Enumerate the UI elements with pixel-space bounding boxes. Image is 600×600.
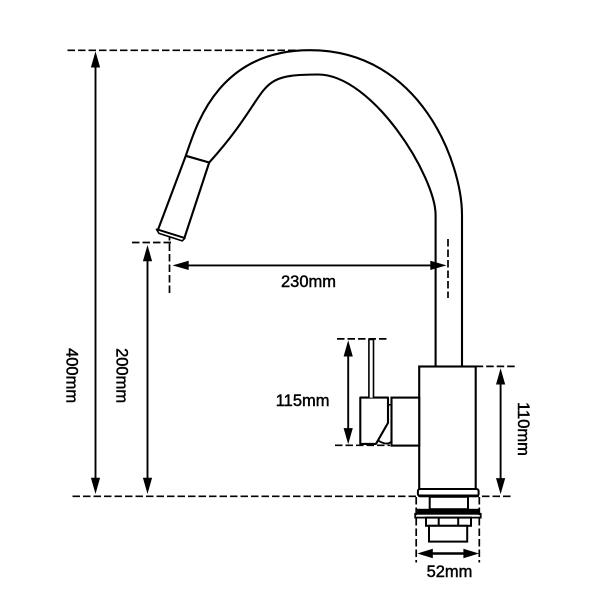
svg-text:110mm: 110mm: [514, 402, 532, 456]
svg-text:230mm: 230mm: [281, 273, 336, 291]
svg-text:115mm: 115mm: [276, 392, 330, 410]
svg-text:52mm: 52mm: [427, 563, 473, 581]
svg-text:200mm: 200mm: [113, 348, 131, 403]
svg-text:400mm: 400mm: [63, 348, 81, 403]
